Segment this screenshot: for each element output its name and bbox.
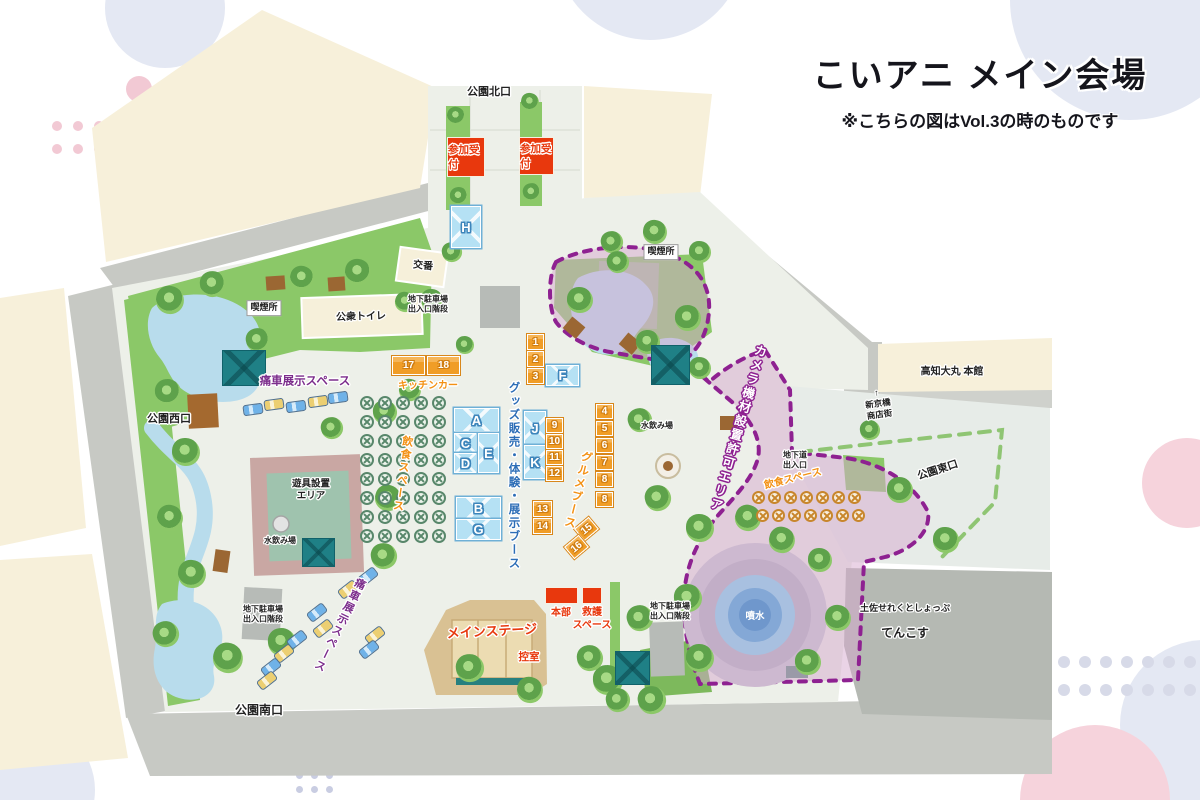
picnic-table-icon [414,510,428,524]
tent-c: C [454,433,477,453]
picnic-table-icon [360,472,374,486]
picnic-table-icon [432,415,446,429]
tent-k: K [524,445,546,479]
tent-j: J [524,411,546,445]
booth-number: 2 [533,354,539,365]
picnic-table-icon [360,510,374,524]
booth-number: 14 [537,521,548,532]
header: こいアニ メイン会場 ※こちらの図はVol.3の時のものです [770,48,1190,132]
booth-number: 18 [438,360,449,371]
teal-tent [615,651,650,685]
booth-18: 18 [427,356,460,375]
tent-letter: J [531,421,538,436]
booth-7: 7 [596,455,613,470]
tent-d: D [454,453,477,473]
picnic-table-icon [820,509,833,522]
underpass-label: 地下道 出入口 [783,451,807,472]
picnic-table-icon [836,509,849,522]
picnic-table-icon [414,472,428,486]
booth-6: 6 [596,438,613,453]
tree-icon [686,644,714,672]
tent-letter: C [461,436,470,451]
picnic-table-icon [414,434,428,448]
booth-9: 9 [546,418,563,433]
parking-bottom-right-label: 地下駐車場 出入口階段 [650,602,690,623]
daimaru-label: 高知大丸 本館 [921,366,984,379]
page-title: こいアニ メイン会場 [770,48,1190,97]
water-right-label: 水飲み場 [641,421,673,431]
picnic-table-icon [360,415,374,429]
booth-5: 5 [596,421,613,436]
venue-map-screenshot: { "header": { "title": "こいアニ メイン会場", "no… [0,0,1200,800]
picnic-table-icon [848,491,861,504]
booth-number: 12 [549,468,560,479]
booth-number: 8 [602,474,608,485]
tree-icon [808,548,832,572]
greenroom-label: 控室 [519,651,540,665]
picnic-table-icon [832,491,845,504]
booth-number: 10 [549,436,560,447]
toilet-label: 公衆トイレ [336,310,386,325]
picnic-table-icon [432,472,446,486]
picnic-table-icon [800,491,813,504]
picnic-table-icon [378,529,392,543]
reception-label: 参加受付 [520,141,553,171]
booth-number: 1 [533,337,539,348]
booth-13: 13 [533,501,552,517]
booth-8b: 8 [596,492,613,507]
picnic-table-icon [396,415,410,429]
booth-number: 13 [537,504,548,515]
gate-west-label: 公園西口 [147,412,191,426]
booth-2: 2 [527,351,544,367]
booth-number: 17 [403,360,414,371]
tent-letter: D [461,456,470,471]
gate-south-label: 公園南口 [235,703,283,719]
water-left-label: 水飲み場 [264,536,296,546]
tent-letter: G [473,522,483,537]
booth-3: 3 [527,368,544,384]
tent-letter: E [484,446,493,461]
page-subtitle: ※こちらの図はVol.3の時のものです [770,107,1190,132]
booth-number: 11 [549,452,560,463]
booth-number: 4 [602,406,608,417]
tent-e: E [478,433,499,473]
parking-bottom-left-label: 地下駐車場 出入口階段 [243,605,283,626]
tent-letter: B [474,501,483,516]
firstaid-label: 救護 スペース [573,606,612,632]
itasha-top-label: 痛車展示スペース [260,375,351,390]
picnic-table-icon [378,434,392,448]
picnic-table-icon [432,510,446,524]
booth-number: 7 [602,457,608,468]
picnic-table-icon [360,396,374,410]
tent-g: G [456,519,501,540]
tent-b: B [456,497,501,519]
picnic-table-icon [378,415,392,429]
tent-letter: H [461,220,470,235]
picnic-table-icon [784,491,797,504]
booth-4: 4 [596,404,613,419]
tenkosu-label: 土佐せれくとしょっぷ てんこす [860,591,950,653]
booth-1: 1 [527,334,544,350]
picnic-table-icon [414,491,428,505]
picnic-table-icon [752,491,765,504]
tree-icon [689,241,711,263]
picnic-table-icon [378,510,392,524]
teal-tent [651,345,690,385]
shotengai-label: ↑ 新京橋 商店街 [863,386,893,422]
smoking-left-label: 喫煙所 [246,300,281,316]
booth-10: 10 [546,434,563,449]
booth-number: 6 [602,440,608,451]
police-label: 交番 [412,258,433,273]
booth-number: 16 [569,539,585,555]
booth-14: 14 [533,518,552,534]
hq-label: 本部 [551,607,571,620]
picnic-table-icon [378,472,392,486]
picnic-table-icon [772,509,785,522]
tree-icon [686,514,714,542]
playground-label: 遊具設置 エリア [292,479,330,504]
booth-number: 3 [533,371,539,382]
picnic-table-icon [432,453,446,467]
tent-f: F [546,365,579,386]
booth-8: 8 [596,472,613,487]
booth-number: 5 [602,423,608,434]
picnic-table-icon [360,491,374,505]
picnic-table-icon [360,434,374,448]
picnic-table-icon [414,396,428,410]
parking-top-label: 地下駐車場 出入口階段 [408,295,448,316]
picnic-table-icon [768,491,781,504]
smoking-right-label: 喫煙所 [643,244,678,260]
tree-icon [689,357,711,379]
picnic-table-icon [396,529,410,543]
tenkosu-line1: 土佐せれくとしょっぷ [860,603,950,615]
tent-letter: F [559,368,567,383]
teal-tent [302,538,335,567]
tent-letter: A [472,413,481,428]
gate-north-label: 公園北口 [467,85,511,99]
picnic-table-icon [396,396,410,410]
picnic-table-icon [432,396,446,410]
reception-booth: 参加受付 [519,137,554,175]
tree-icon [567,287,593,313]
picnic-table-icon [816,491,829,504]
tent-h: H [451,206,481,248]
booth-11: 11 [546,450,563,465]
picnic-table-icon [432,434,446,448]
picnic-table-icon [414,529,428,543]
picnic-table-icon [432,529,446,543]
picnic-table-icon [852,509,865,522]
tree-icon [887,477,913,503]
hq-booth [545,587,578,604]
goods-booth-label: グッズ販売・体験・展示ブース [506,382,521,571]
tent-a: A [454,408,499,432]
picnic-table-icon [804,509,817,522]
firstaid-booth [582,587,602,604]
picnic-table-icon [788,509,801,522]
booth-number: 9 [552,420,558,431]
booth-number: 8 [602,494,608,505]
picnic-table-icon [378,453,392,467]
booth-12: 12 [546,466,563,481]
picnic-table-icon [414,453,428,467]
picnic-table-icon [756,509,769,522]
picnic-table-icon [360,529,374,543]
tent-letter: K [530,455,539,470]
booth-17: 17 [392,356,425,375]
kitchen-car-label: キッチンカー [398,380,458,393]
picnic-table-icon [432,491,446,505]
picnic-table-icon [360,453,374,467]
picnic-table-icon [378,396,392,410]
reception-booth: 参加受付 [447,137,485,177]
reception-label: 参加受付 [448,142,484,172]
tenkosu-line2: てんこす [860,626,950,642]
fountain-label: 噴水 [745,611,764,623]
booth-number: 15 [579,521,595,537]
picnic-table-icon [414,415,428,429]
